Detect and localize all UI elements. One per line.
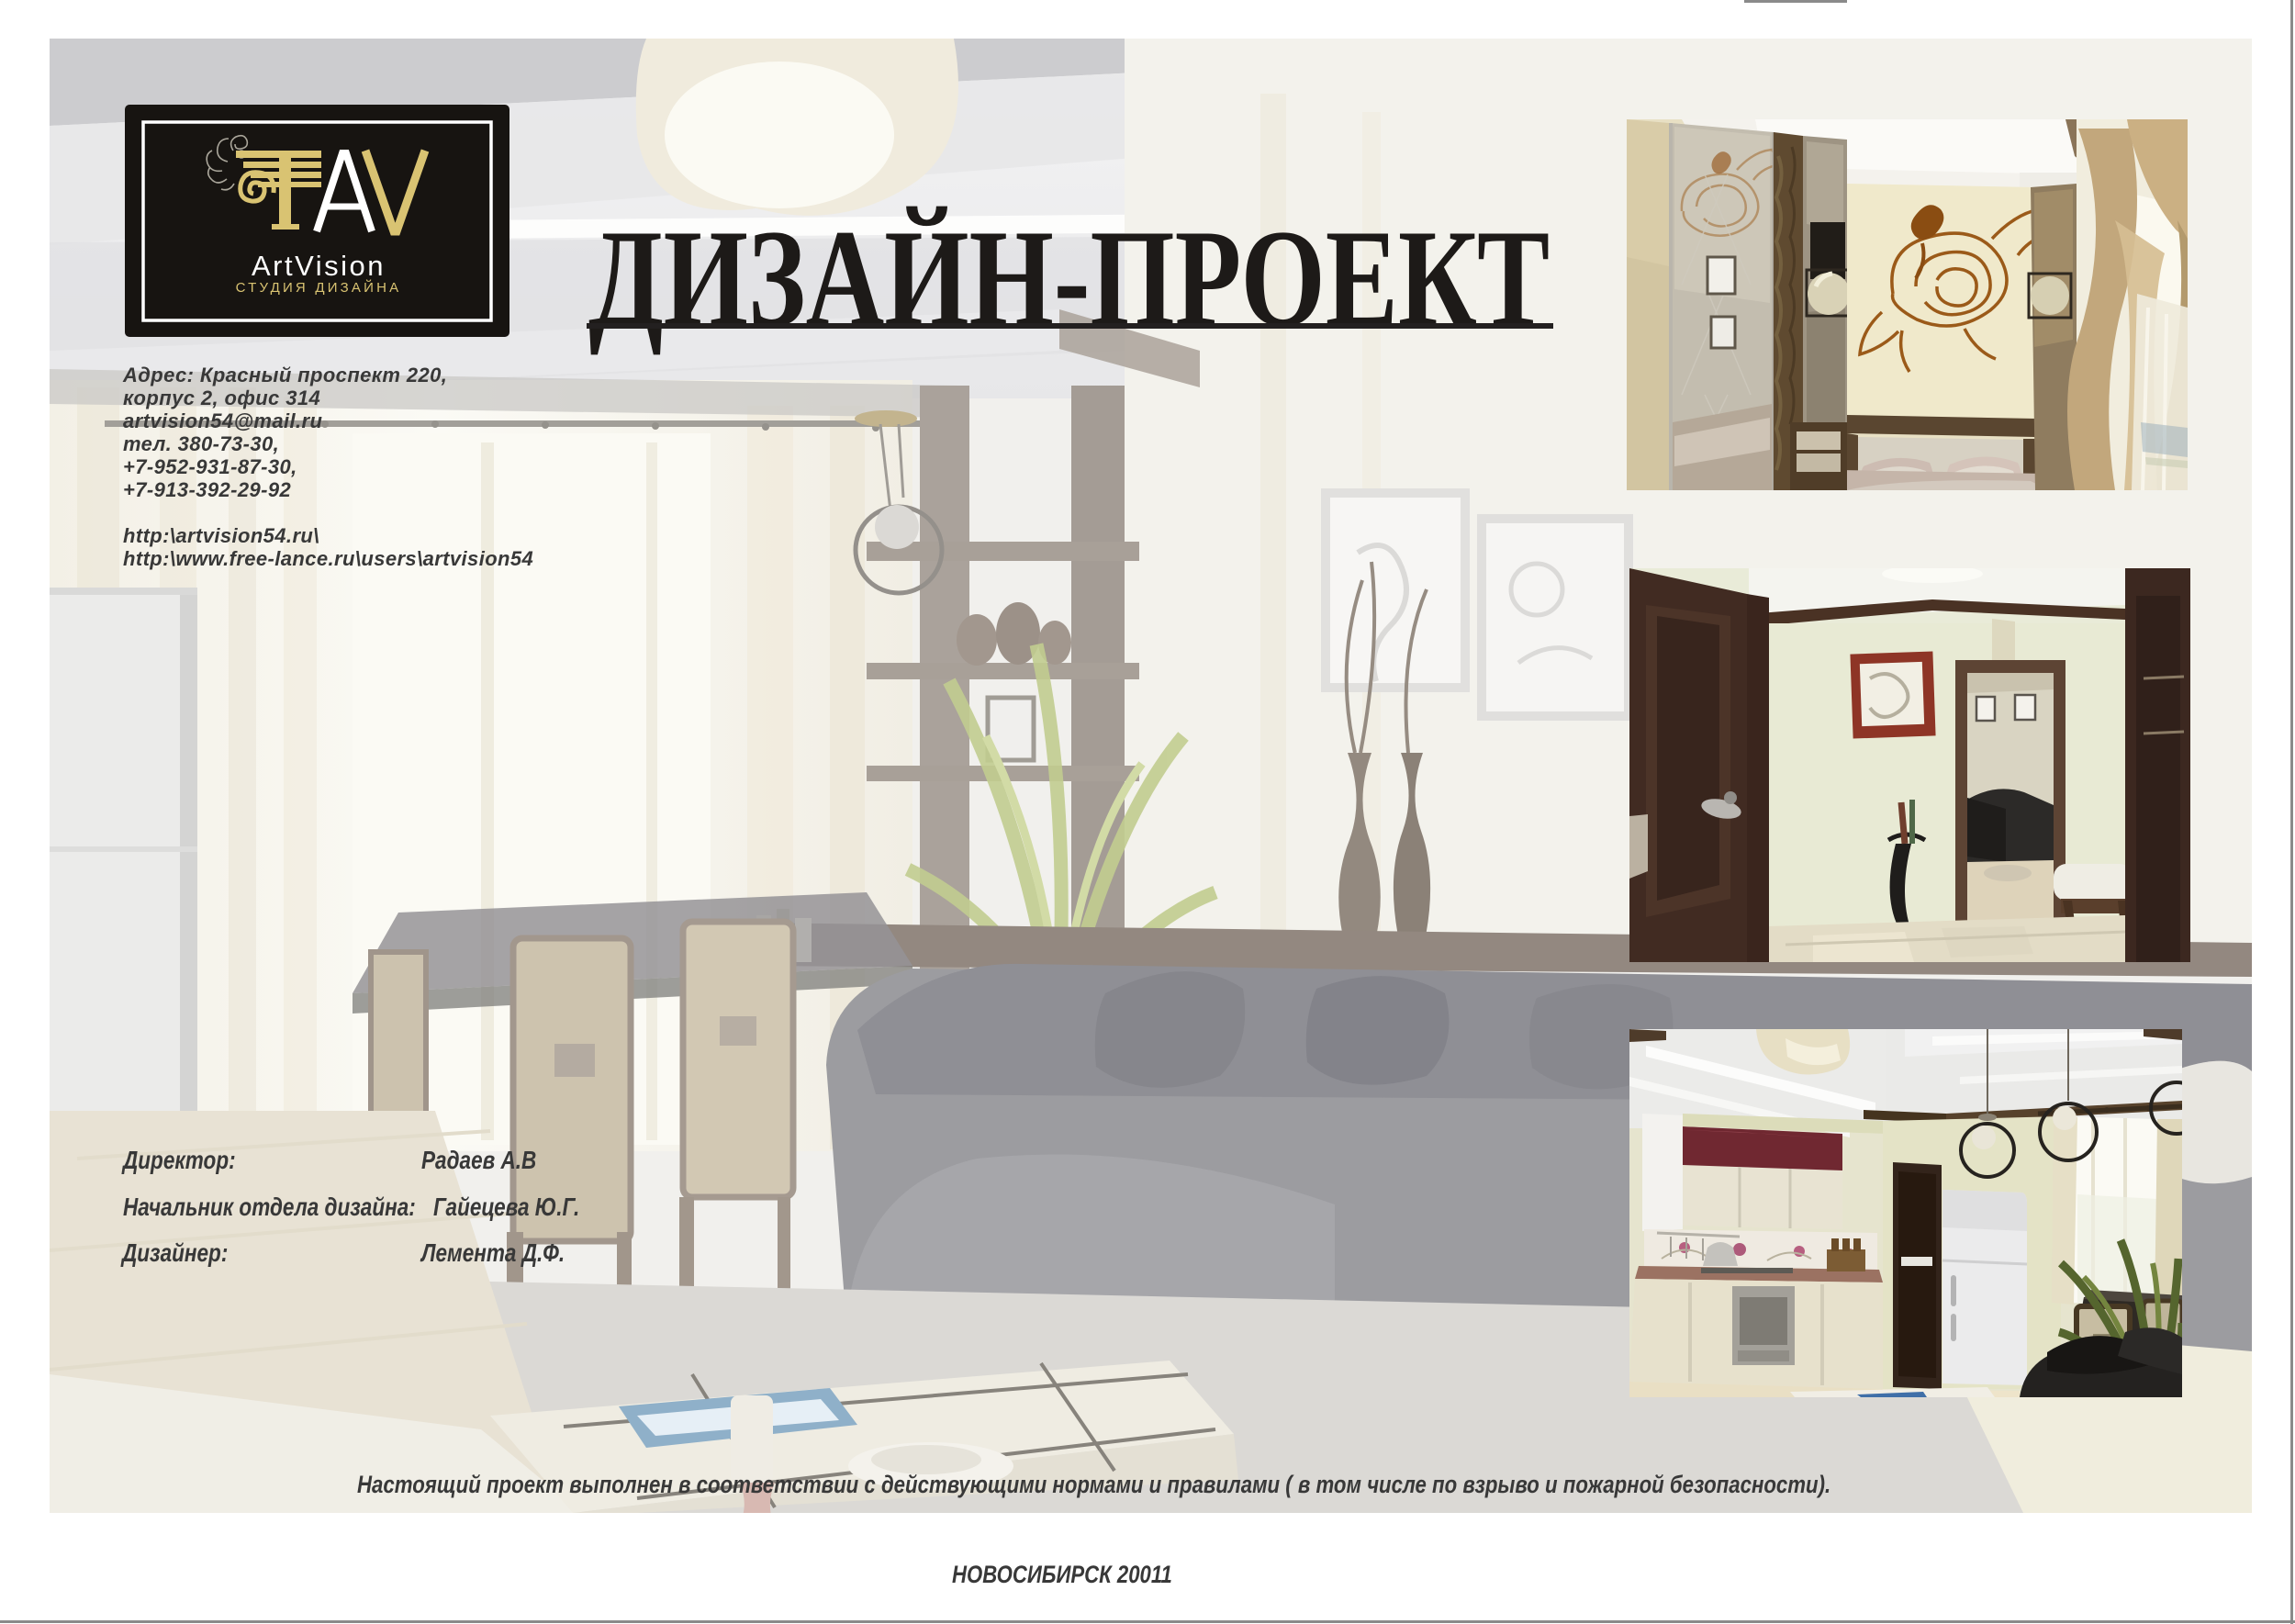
svg-text:СТУДИЯ ДИЗАЙНА: СТУДИЯ ДИЗАЙНА bbox=[236, 279, 402, 296]
svg-text:ArtVision: ArtVision bbox=[252, 250, 386, 282]
